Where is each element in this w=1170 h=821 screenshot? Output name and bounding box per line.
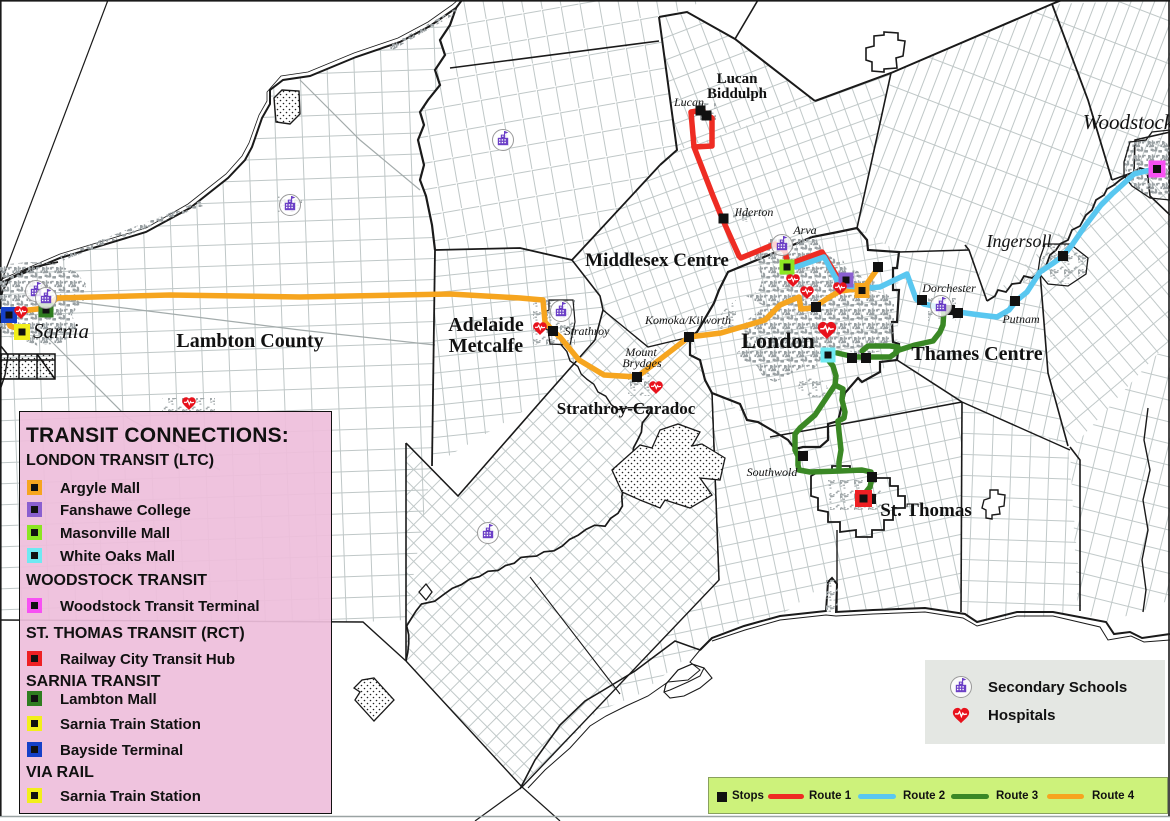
svg-text:London: London bbox=[741, 328, 814, 353]
svg-text:Lambton County: Lambton County bbox=[176, 330, 323, 352]
svg-text:Komoka/Kilworth: Komoka/Kilworth bbox=[644, 313, 731, 327]
svg-text:Middlesex Centre: Middlesex Centre bbox=[585, 250, 729, 271]
svg-text:Ilderton: Ilderton bbox=[734, 205, 774, 219]
svg-text:St. Thomas: St. Thomas bbox=[880, 500, 972, 521]
svg-text:Southwold: Southwold bbox=[747, 465, 799, 479]
svg-text:Adelaide: Adelaide bbox=[448, 314, 524, 336]
svg-text:Woodstock: Woodstock bbox=[1083, 110, 1170, 134]
svg-text:Ingersoll: Ingersoll bbox=[986, 231, 1052, 251]
svg-text:Biddulph: Biddulph bbox=[707, 86, 768, 102]
svg-text:Lucan: Lucan bbox=[673, 95, 704, 109]
svg-text:Lucan: Lucan bbox=[717, 71, 759, 87]
svg-text:Strathroy-Caradoc: Strathroy-Caradoc bbox=[557, 399, 696, 418]
svg-text:Arva: Arva bbox=[792, 223, 816, 237]
svg-text:Dorchester: Dorchester bbox=[921, 281, 976, 295]
svg-text:Strathroy: Strathroy bbox=[565, 324, 611, 338]
svg-text:Thames Centre: Thames Centre bbox=[911, 343, 1042, 365]
svg-text:Putnam: Putnam bbox=[1001, 312, 1040, 326]
svg-text:Sarnia: Sarnia bbox=[33, 319, 89, 343]
svg-text:Brydges: Brydges bbox=[622, 356, 662, 370]
svg-text:Metcalfe: Metcalfe bbox=[449, 335, 524, 357]
